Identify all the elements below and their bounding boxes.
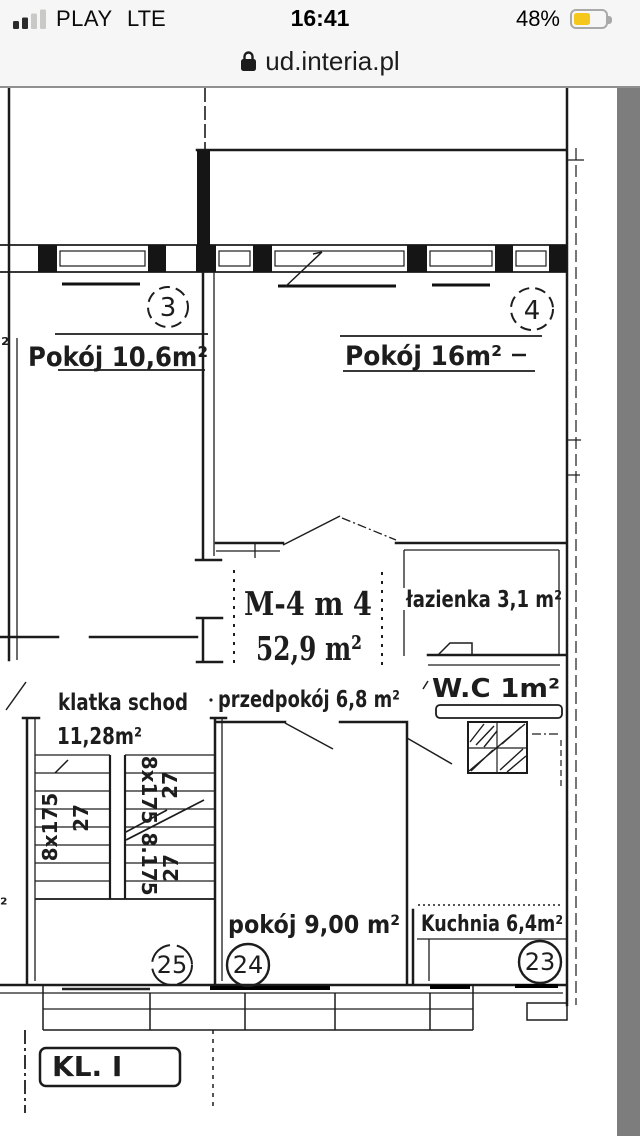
stair-depth-right-upper: 27: [158, 771, 182, 799]
stair-steps-right-lower: 8.175: [137, 832, 161, 895]
room-number-4: 4: [524, 296, 541, 326]
edge-fragment-top: ²: [1, 334, 9, 356]
room-label-kuchnia: Kuchnia 6,4m²: [421, 912, 563, 937]
room-label-wc: W.C 1m²: [432, 674, 560, 704]
stair-depth-left: 27: [69, 804, 93, 832]
unit-type-label: M-4 m 4: [244, 584, 372, 623]
room-label-pokoj-9: pokój 9,00 m²: [228, 910, 400, 939]
walls-thick: [0, 88, 567, 1005]
room-number-25: 25: [157, 951, 188, 979]
stairwell-area-label: 11,28m²: [57, 724, 142, 750]
room-label-pokoj-10-6: Pokój 10,6m²: [28, 342, 208, 373]
room-number-24: 24: [233, 951, 264, 979]
room-label-przedpokoj: przedpokój 6,8 m²: [218, 687, 400, 713]
vent-shaft-box: [468, 722, 527, 773]
floor-plan-image: 3 Pokój 10,6m² 4 Pokój 16m² M-4 m 4 52,9…: [0, 88, 640, 1136]
south-window-band: [43, 985, 567, 1030]
battery-tip: [608, 16, 612, 24]
room-label-pokoj-16: Pokój 16m²: [345, 341, 502, 372]
wc-wall-band: [436, 705, 562, 718]
room-label-lazienka: łazienka 3,1 m²: [405, 587, 562, 613]
content-gutter: [617, 88, 640, 1136]
staircase: [35, 755, 215, 899]
stair-steps-left: 8x175: [38, 793, 62, 862]
unit-area-label: 52,9 m²: [256, 629, 362, 668]
room-number-23: 23: [525, 948, 556, 976]
url-text: ud.interia.pl: [265, 46, 399, 77]
hall-label-dot: [209, 698, 212, 701]
staircase-id-label: KL. I: [52, 1050, 122, 1083]
north-window-band: [0, 150, 567, 899]
lock-icon: [240, 50, 257, 72]
floor-plan-svg: 3 Pokój 10,6m² 4 Pokój 16m² M-4 m 4 52,9…: [0, 88, 617, 1136]
room-number-3: 3: [160, 293, 177, 323]
battery-level-fill: [574, 13, 590, 25]
browser-header: PLAY LTE 16:41 48% ud.interia.pl: [0, 0, 640, 88]
battery-icon: [570, 9, 608, 29]
status-bar: PLAY LTE 16:41 48%: [0, 0, 640, 34]
stairwell-name-label: klatka schod: [58, 690, 188, 716]
edge-fragment-bottom: ²: [0, 895, 7, 915]
address-bar[interactable]: ud.interia.pl: [0, 36, 640, 86]
battery-percent-label: 48%: [516, 6, 560, 32]
stair-depth-right-lower: 27: [159, 854, 183, 882]
